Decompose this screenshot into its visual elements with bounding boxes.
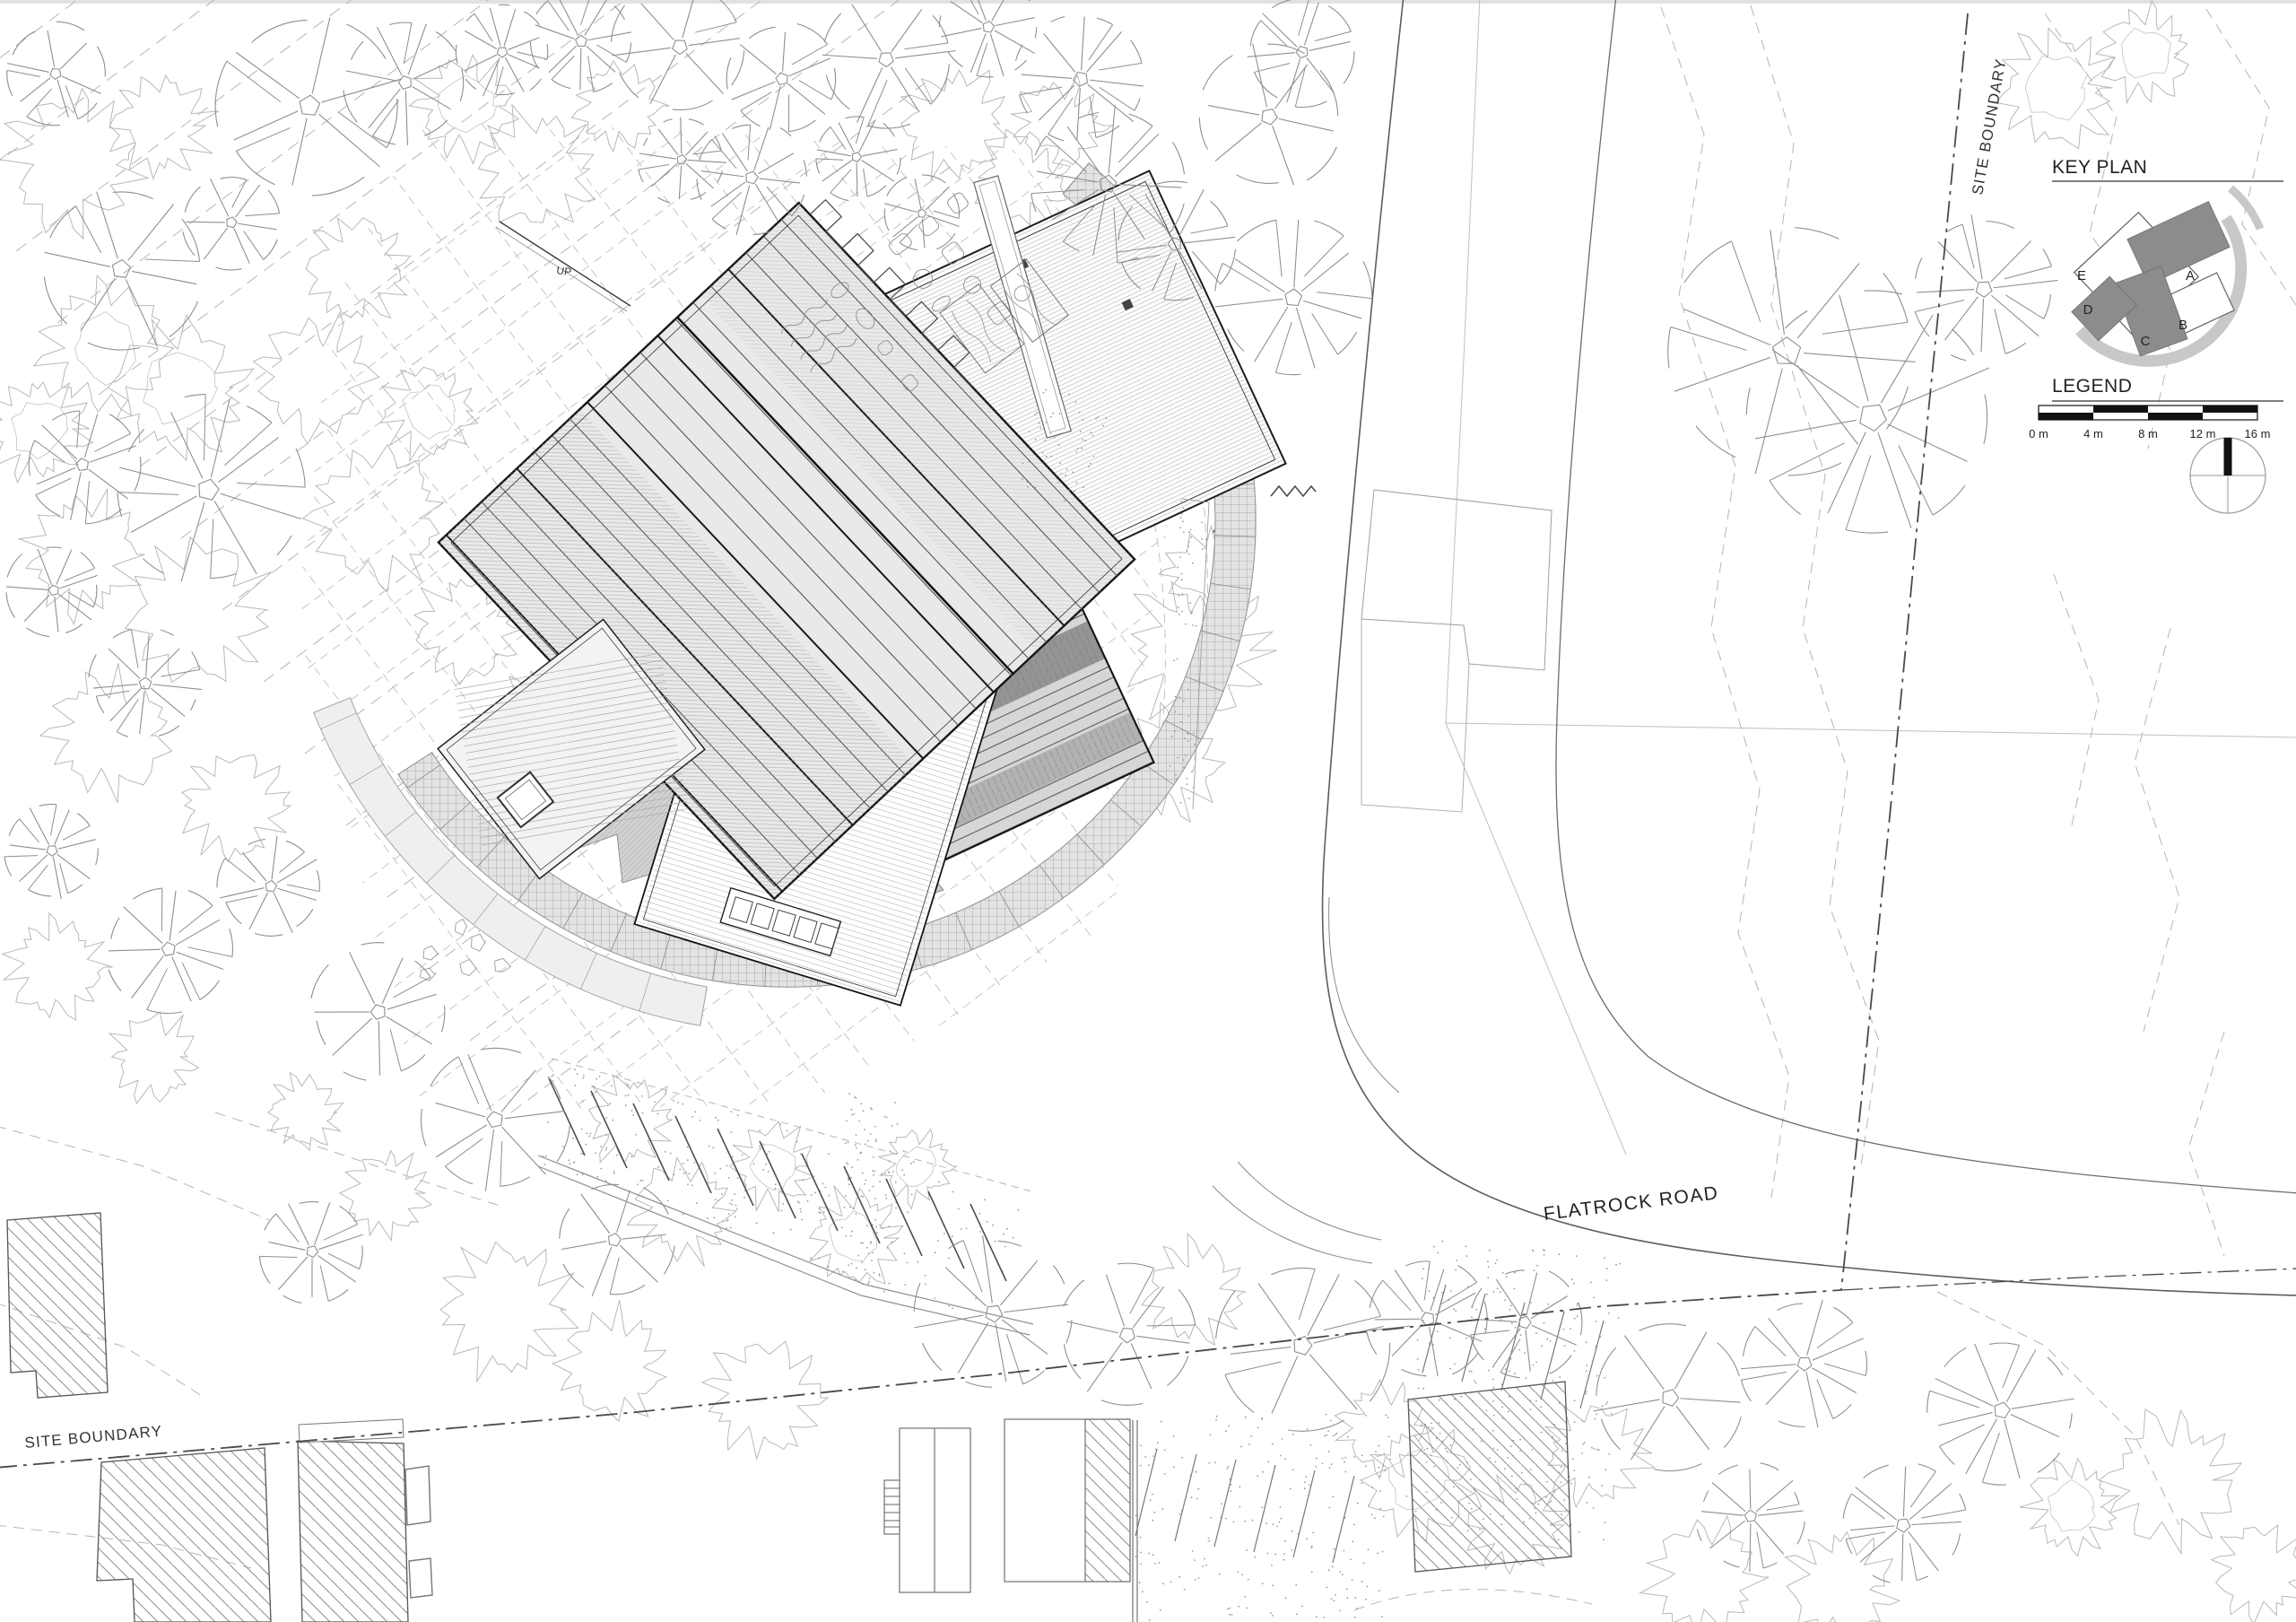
key-plan-label-d: D bbox=[2083, 302, 2093, 318]
scale-tick-4: 4 m bbox=[2083, 427, 2103, 440]
north-arrow bbox=[2190, 438, 2266, 513]
key-plan-label-c: C bbox=[2141, 334, 2151, 349]
scale-tick-0: 0 m bbox=[2029, 427, 2048, 440]
scan-edge bbox=[0, 0, 2296, 4]
neighbor-building bbox=[1408, 1382, 1571, 1572]
site-plan-sheet: SITE BOUNDARY SITE BOUNDARY FLATROCK ROA… bbox=[0, 0, 2296, 1622]
scale-tick-8: 8 m bbox=[2138, 427, 2158, 440]
key-plan-label-e: E bbox=[2077, 268, 2086, 283]
neighbor-bay bbox=[409, 1558, 432, 1598]
neighbor-bay bbox=[405, 1466, 430, 1525]
key-plan-label-b: B bbox=[2179, 318, 2187, 333]
scale-tick-16: 16 m bbox=[2245, 427, 2271, 440]
key-plan-label-a: A bbox=[2186, 268, 2195, 283]
north-needle bbox=[2224, 438, 2232, 475]
key-plan-title: KEY PLAN bbox=[2052, 157, 2147, 178]
site-plan-drawing: SITE BOUNDARY SITE BOUNDARY FLATROCK ROA… bbox=[0, 0, 2296, 1622]
scale-tick-12: 12 m bbox=[2190, 427, 2216, 440]
neighbor-building bbox=[298, 1441, 408, 1622]
stair-up-label: UP bbox=[556, 264, 572, 278]
neighbor-building bbox=[7, 1213, 108, 1398]
legend-title: LEGEND bbox=[2052, 376, 2132, 397]
